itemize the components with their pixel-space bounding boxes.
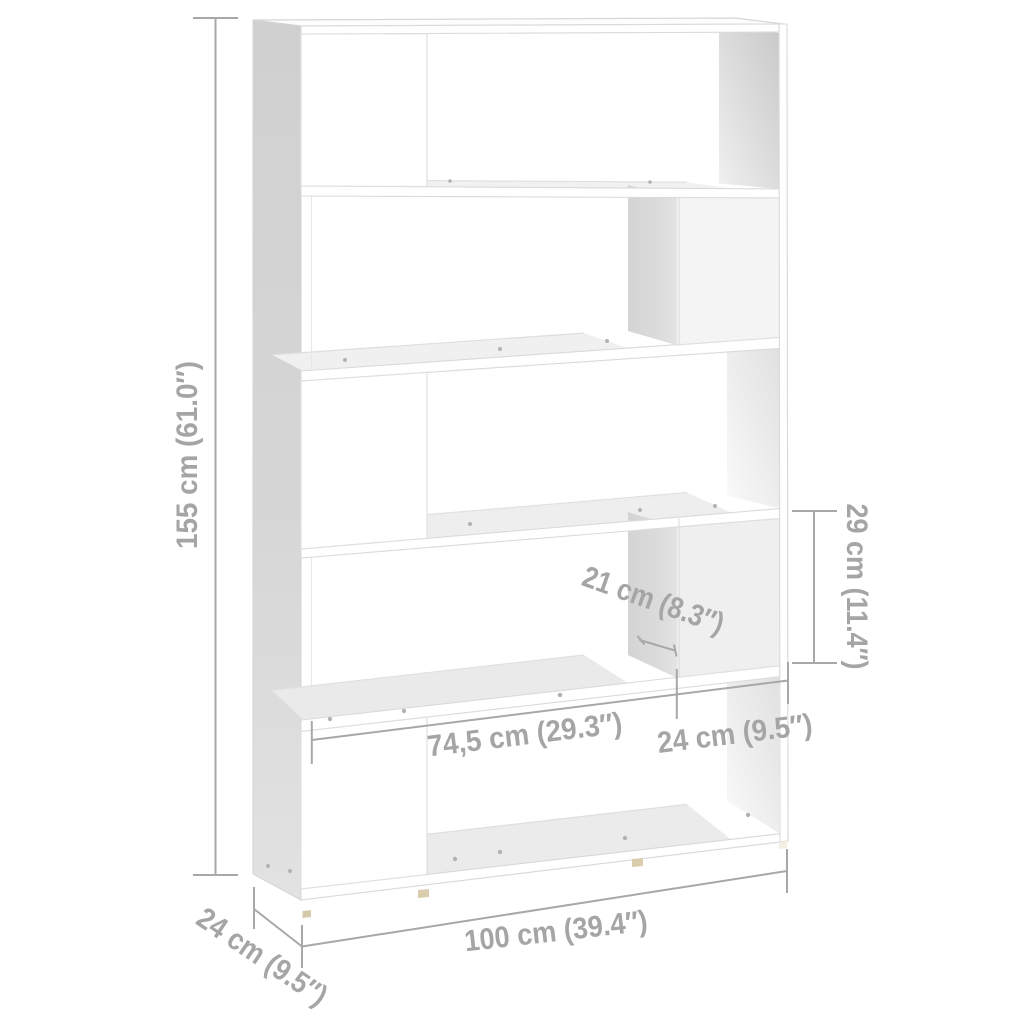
- svg-text:29 cm (11.4″): 29 cm (11.4″): [840, 504, 873, 670]
- svg-text:155 cm (61.0″): 155 cm (61.0″): [171, 361, 204, 549]
